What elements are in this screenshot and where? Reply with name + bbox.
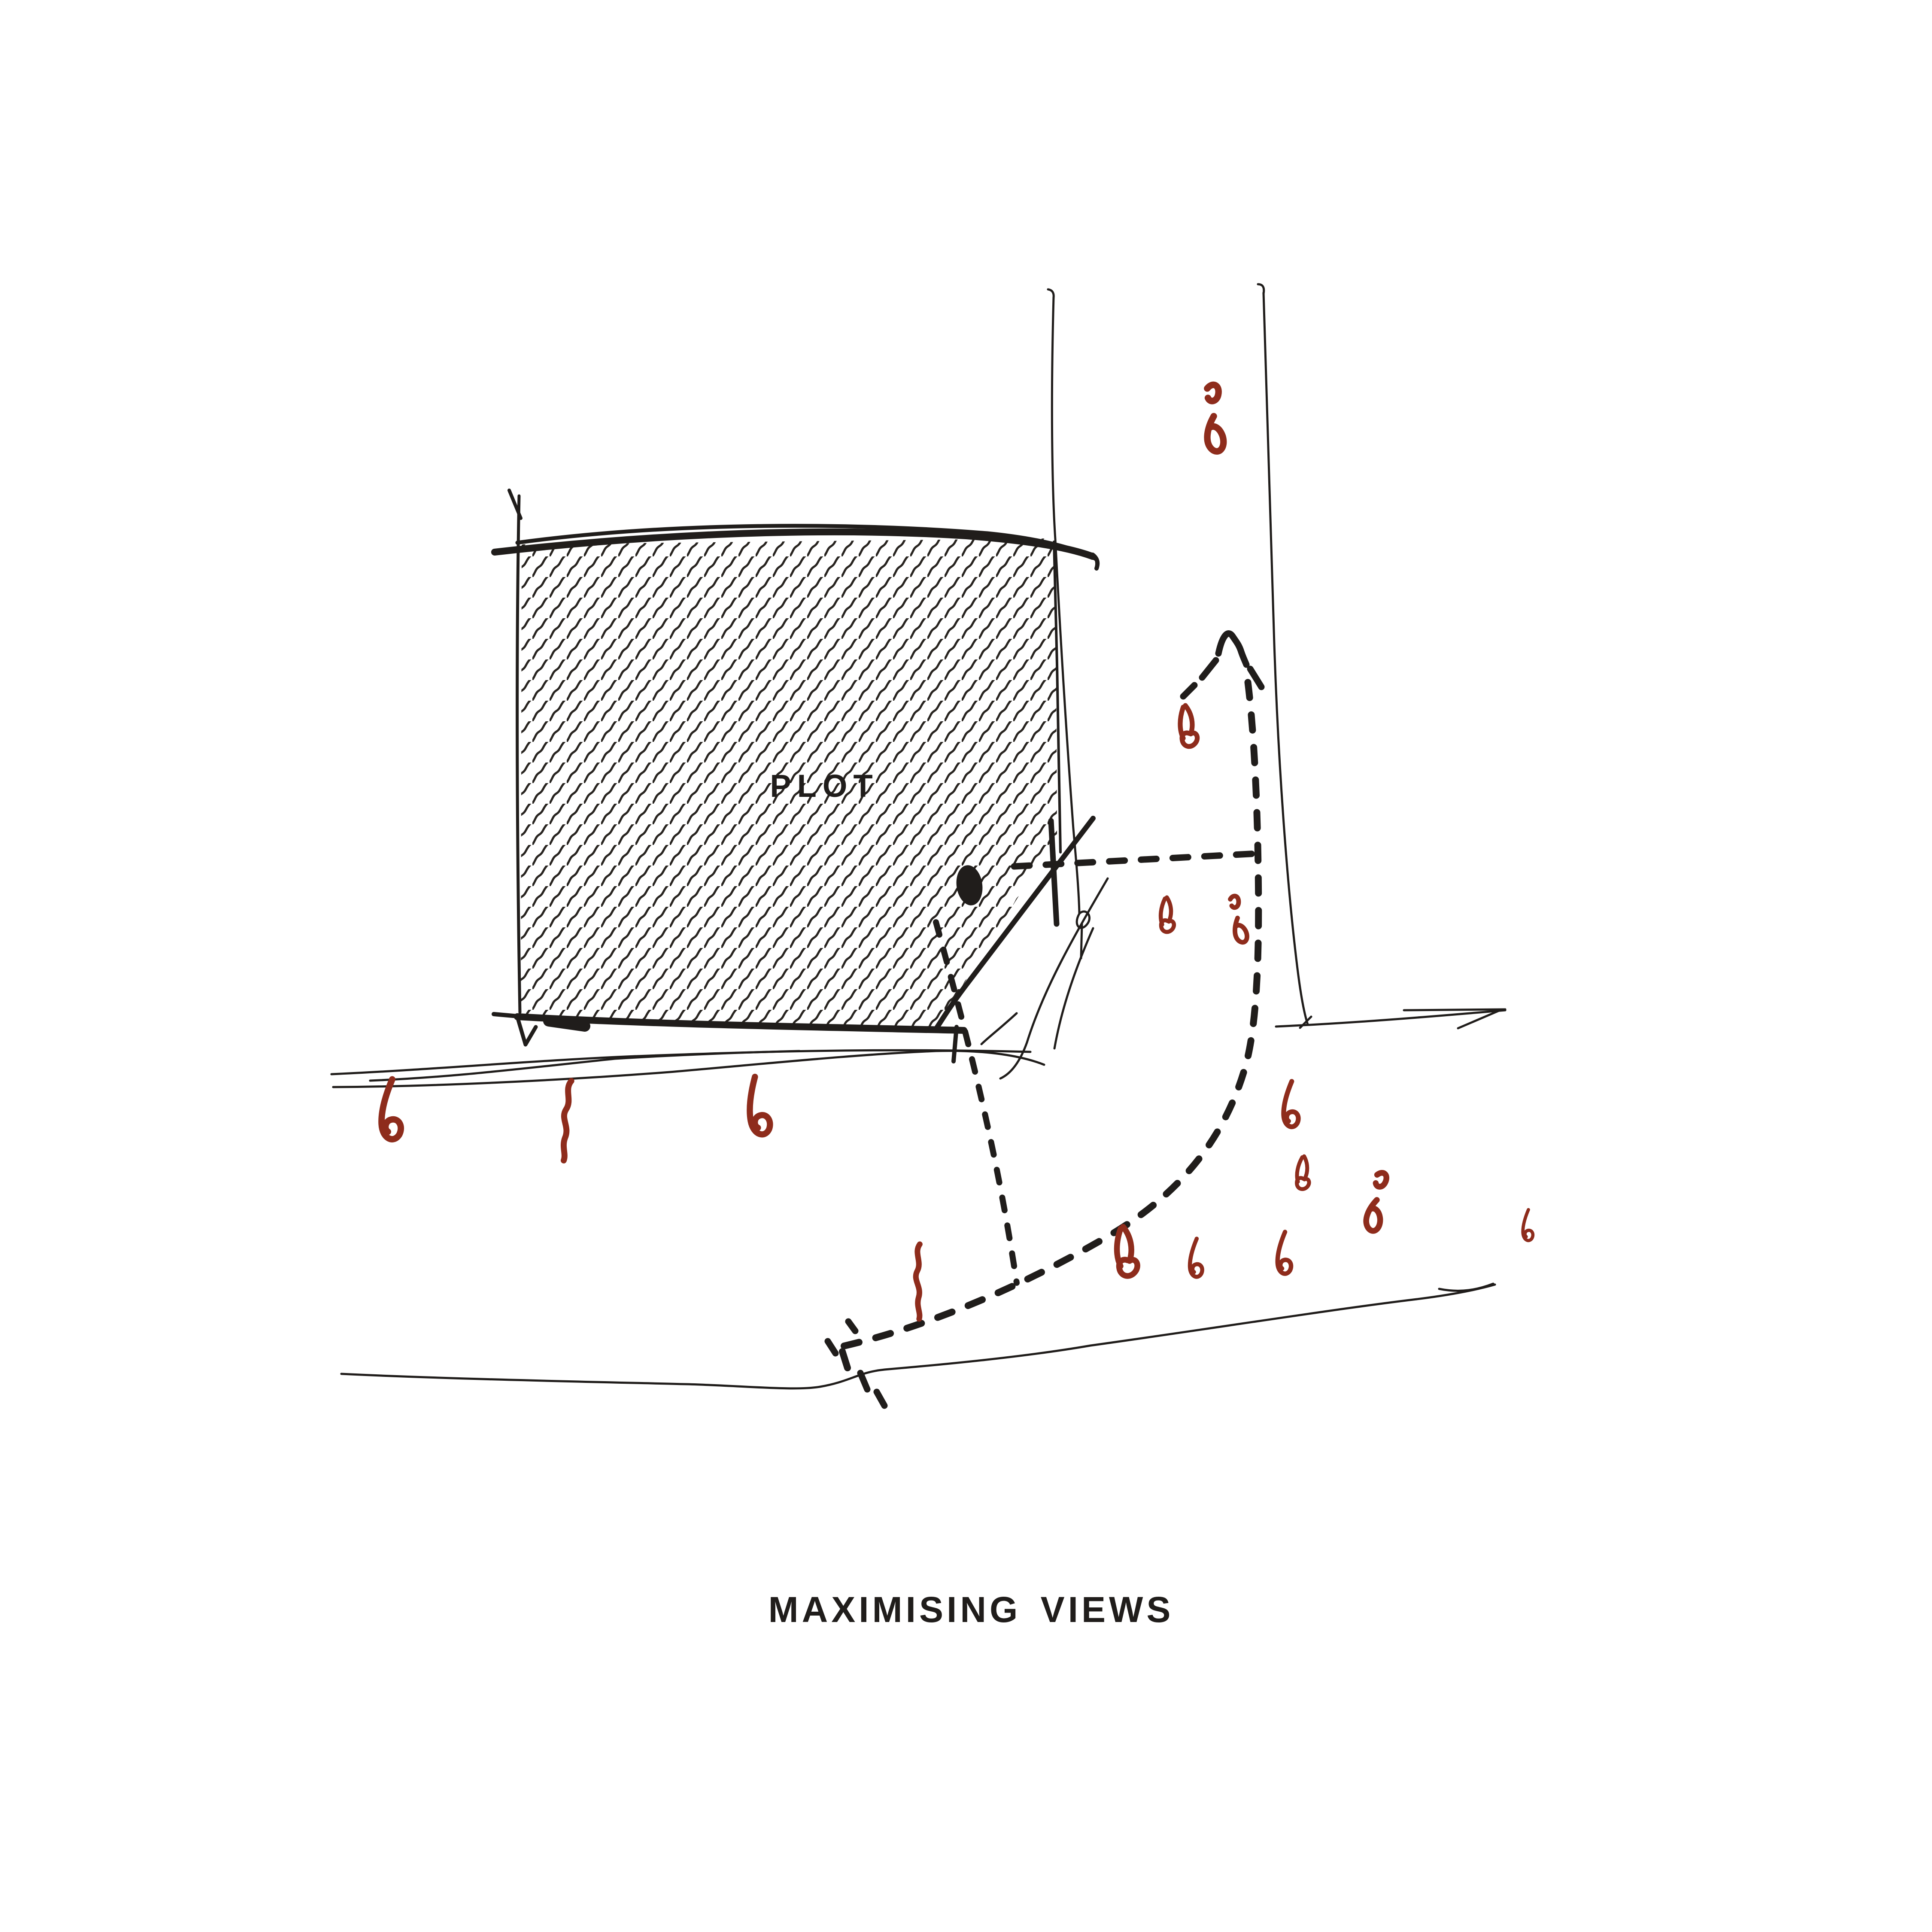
tree-mark bbox=[1180, 705, 1197, 746]
maximising-views-sketch: PLOT MAXIMISING VIEWS bbox=[0, 0, 1932, 1932]
tree-mark bbox=[1284, 1081, 1298, 1127]
tree-mark bbox=[1230, 895, 1248, 943]
tree-mark bbox=[1523, 1210, 1533, 1241]
tree-mark bbox=[1159, 897, 1177, 933]
tree-mark bbox=[916, 1244, 920, 1319]
tree-mark bbox=[1207, 385, 1224, 451]
tree-mark bbox=[1364, 1172, 1392, 1232]
tree-mark bbox=[1117, 1227, 1138, 1276]
tree-mark bbox=[744, 1075, 771, 1136]
tree-mark bbox=[1190, 1239, 1203, 1277]
plot-label: PLOT bbox=[770, 768, 878, 804]
tree-mark bbox=[560, 1081, 571, 1160]
sketch-canvas: PLOT MAXIMISING VIEWS bbox=[0, 0, 1932, 1932]
tree-mark bbox=[382, 1079, 401, 1139]
road-lines bbox=[1048, 284, 1311, 1028]
tree-mark bbox=[1294, 1155, 1313, 1190]
caption: MAXIMISING VIEWS bbox=[769, 1589, 1174, 1630]
tree-mark bbox=[1278, 1232, 1291, 1273]
arrow-start-icon bbox=[828, 1321, 884, 1406]
